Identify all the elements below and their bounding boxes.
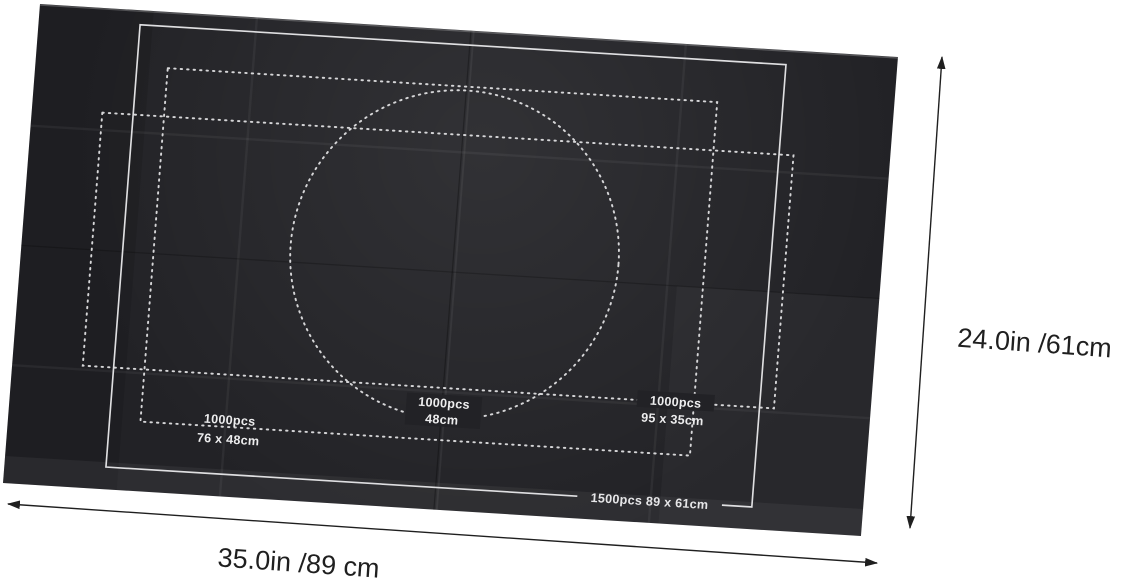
puzzle-mat-product-photo: 1000pcs 48cm 1000pcs 76 x 48cm 1000pcs 9… — [0, 0, 1124, 578]
circle-label-size: 48cm — [425, 412, 459, 428]
height-dimension-arrow — [910, 57, 942, 528]
product-image: 1000pcs 48cm 1000pcs 76 x 48cm 1000pcs 9… — [0, 0, 1124, 578]
fold-creases — [3, 4, 898, 536]
circle-size-label: 1000pcs 48cm — [405, 393, 483, 430]
puzzle-mat: 1000pcs 48cm 1000pcs 76 x 48cm 1000pcs 9… — [3, 4, 898, 536]
height-dimension-label: 24.0in /61cm — [956, 323, 1112, 364]
width-dimension-label: 35.0in /89 cm — [217, 542, 381, 578]
